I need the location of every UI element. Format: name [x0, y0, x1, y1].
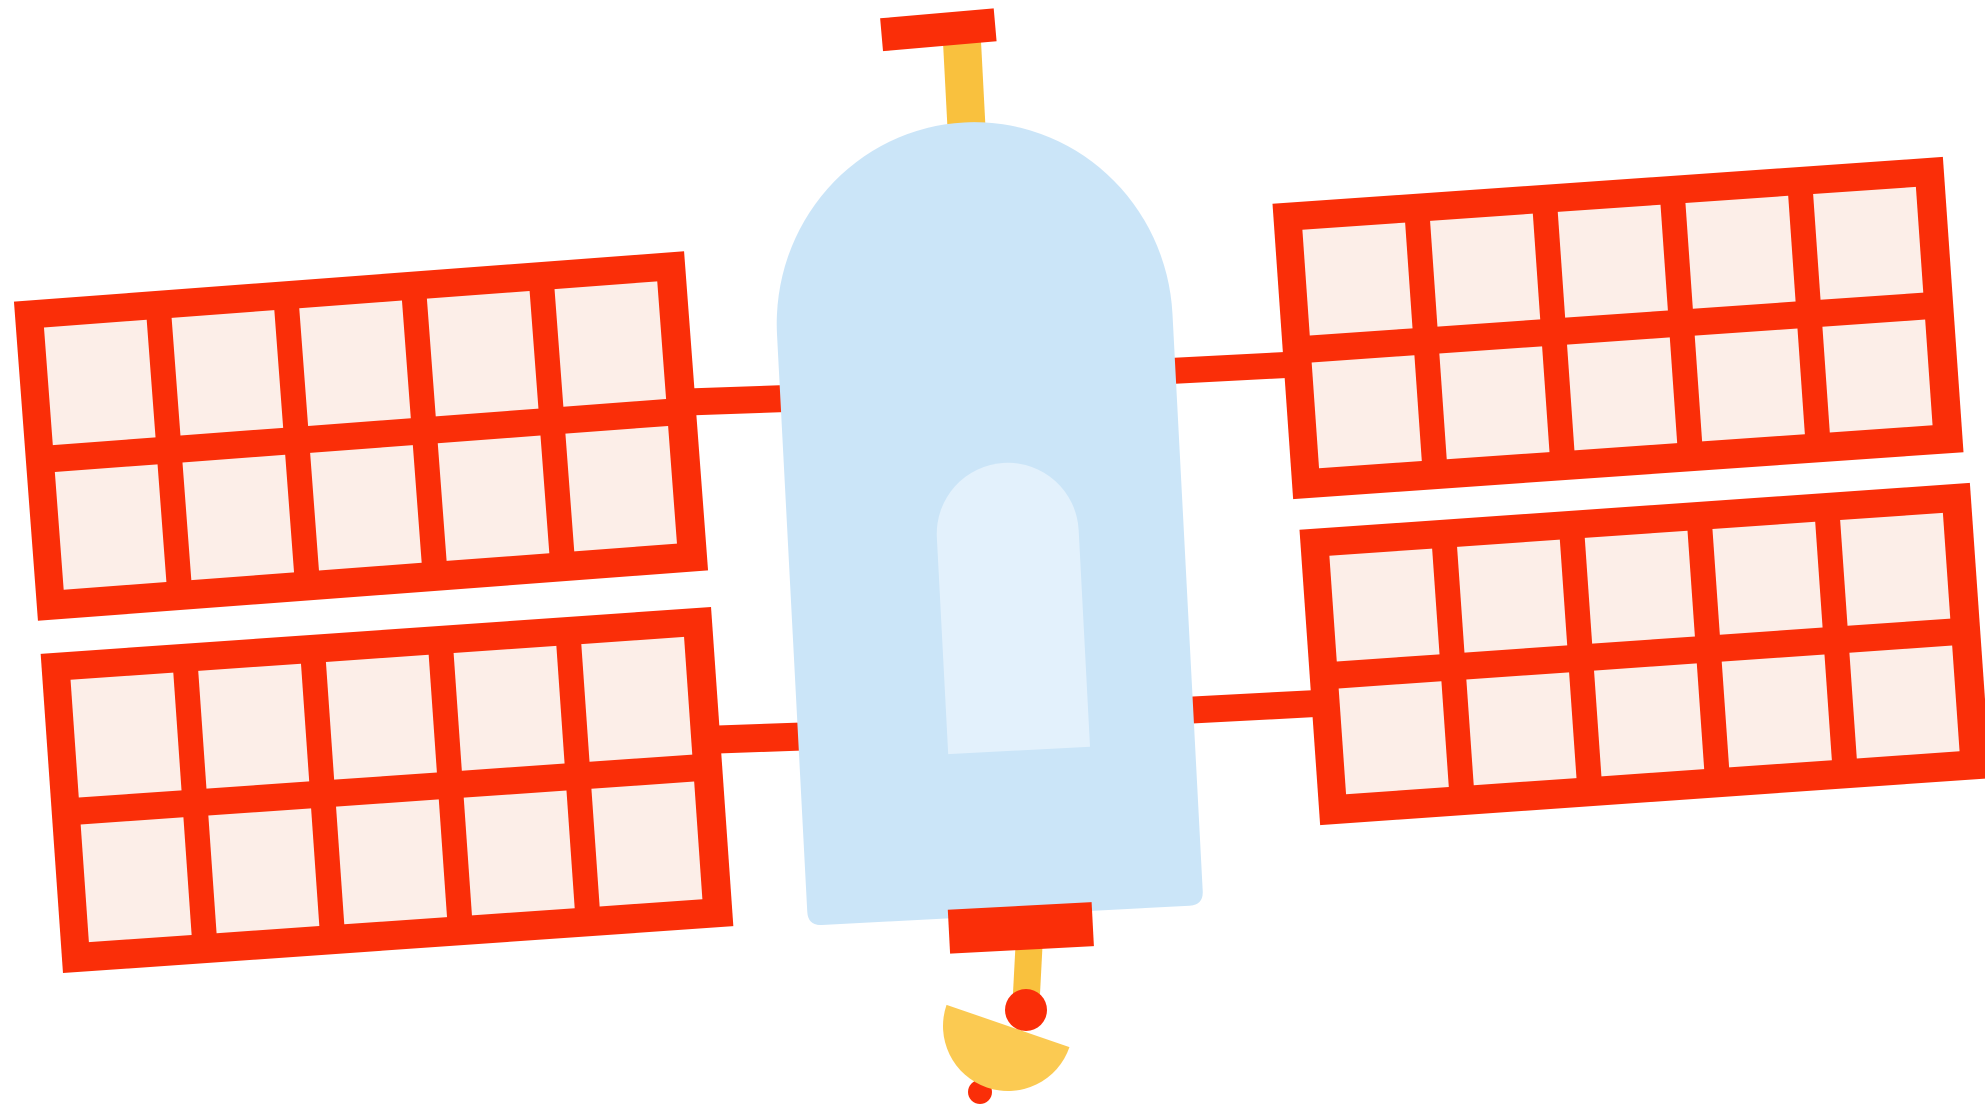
solar-cell: [55, 464, 167, 589]
left-wing: [14, 251, 821, 973]
solar-cell: [1439, 346, 1549, 459]
solar-cell: [438, 436, 550, 561]
solar-panel-left-top: [14, 251, 708, 620]
dish-assembly: [925, 902, 1096, 1107]
solar-cell: [1585, 531, 1695, 644]
solar-cell: [1558, 205, 1668, 318]
solar-cell: [81, 817, 192, 942]
solar-cell: [1849, 646, 1959, 759]
solar-cell: [71, 673, 182, 798]
solar-cell: [1312, 355, 1422, 468]
right-wing: [1157, 157, 1985, 825]
solar-cell: [1466, 672, 1576, 785]
solar-cell: [454, 646, 565, 771]
illustration-canvas: [0, 0, 1985, 1107]
solar-panel-right-bottom: [1299, 483, 1985, 825]
solar-cell: [1695, 328, 1805, 441]
dish-reflector: [925, 1005, 1069, 1107]
solar-panel-right-top: [1272, 157, 1963, 499]
solar-cell: [326, 655, 437, 780]
solar-cell: [1840, 513, 1950, 626]
solar-cell: [1722, 654, 1832, 767]
solar-cell: [1329, 549, 1439, 662]
satellite-body: [766, 112, 1203, 926]
dish-joint-ball: [1005, 989, 1047, 1031]
solar-cell: [182, 455, 294, 580]
solar-cell: [198, 664, 309, 789]
solar-cell: [1594, 663, 1704, 776]
solar-cell: [464, 790, 575, 915]
solar-cell: [565, 426, 677, 551]
solar-cell: [555, 281, 667, 406]
solar-cell: [1822, 320, 1932, 433]
solar-cell: [581, 637, 692, 762]
body-window: [933, 459, 1090, 754]
solar-cell: [1339, 681, 1449, 794]
solar-cell: [1685, 196, 1795, 309]
antenna-mast: [943, 39, 986, 129]
solar-cell: [1567, 337, 1677, 450]
body-collar: [948, 902, 1094, 953]
solar-cell: [44, 320, 156, 445]
solar-cell: [310, 445, 422, 570]
solar-cell: [427, 291, 539, 416]
solar-cell: [172, 310, 284, 435]
solar-cell: [1302, 223, 1412, 336]
solar-cell: [1712, 522, 1822, 635]
solar-cell: [1430, 214, 1540, 327]
antenna-top: [880, 8, 1001, 132]
solar-cell: [591, 782, 702, 907]
solar-cell: [208, 808, 319, 933]
satellite-graphic: [0, 0, 1985, 1107]
solar-cell: [336, 799, 447, 924]
wing-connector-right-top: [1157, 351, 1298, 384]
solar-cell: [1457, 540, 1567, 653]
solar-cell: [1813, 187, 1923, 300]
solar-cell: [299, 301, 411, 426]
solar-panel-left-bottom: [41, 607, 734, 973]
